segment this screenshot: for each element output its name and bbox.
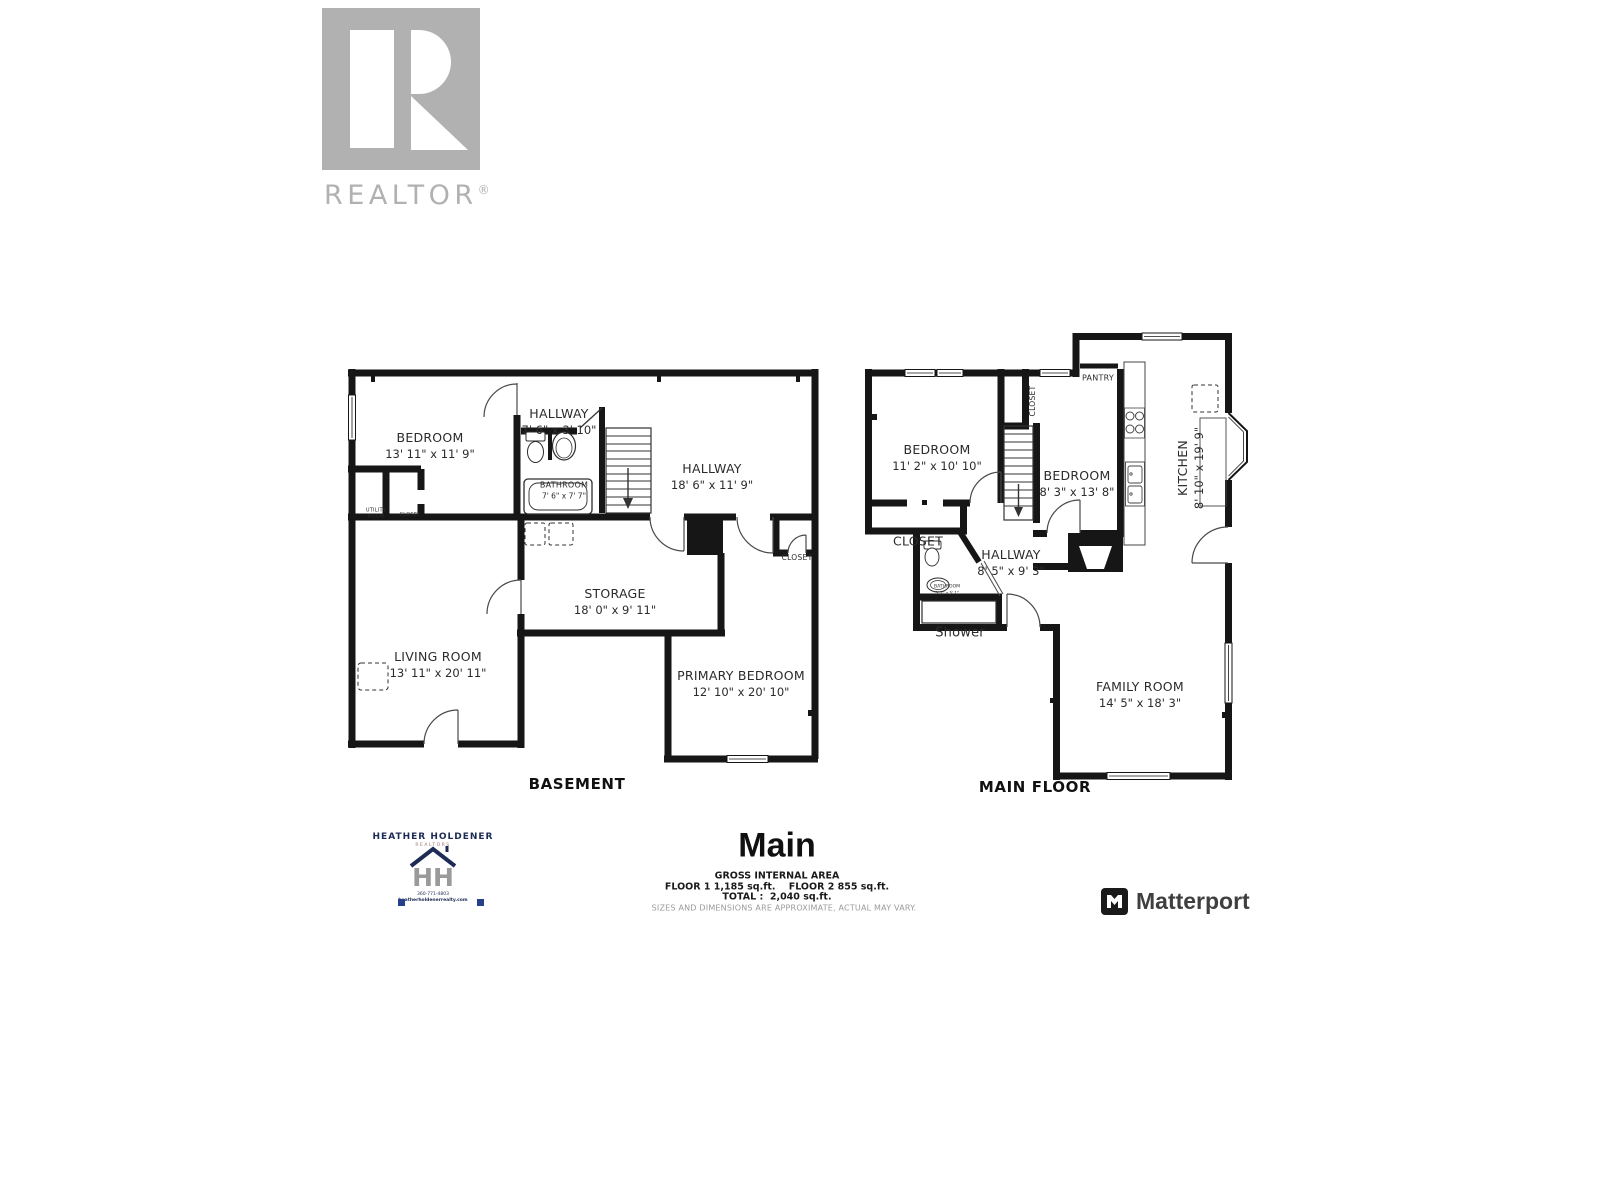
room-label-living-room: LIVING ROOM13' 11" x 20' 11" [390,607,487,681]
disclaimer-text: SIZES AND DIMENSIONS ARE APPROXIMATE, AC… [652,904,917,913]
matterport-icon [1101,888,1128,915]
room-label-bedroom-left: BEDROOM11' 2" x 10' 10" [892,400,982,474]
room-label-hallway: HALLWAY18' 6" x 11' 9" [671,419,753,493]
room-label-closet-small: CLOSET [400,470,421,518]
fireplace-icon [1068,533,1123,572]
room-label-shower: Shower [935,582,985,641]
gross-area-heading: GROSS INTERNAL AREA [715,871,840,882]
room-label-bedroom: BEDROOM13' 11" x 11' 9" [385,388,475,462]
floorplan-graphics: HH [0,0,1600,1200]
agent-name: HEATHER HOLDENER [373,832,494,842]
realtor-logo-text: REALTOR® [324,180,490,211]
room-label-family-room: FAMILY ROOM14' 5" x 18' 3" [1096,637,1184,711]
registered-mark: ® [478,183,490,197]
basement-chimney-icon [687,517,723,555]
matterport-logo-text: Matterport [1136,888,1250,915]
basement-floor-label: BASEMENT [529,775,626,793]
realtor-logo-icon [322,8,480,170]
page-title: Main [738,827,815,866]
room-label-closet-top: CLOSET [986,386,1038,417]
room-label-closet-right: CLOSET [782,511,813,563]
agent-website: heatherholdenerrealty.com [398,898,467,903]
agent-phone: 360-771-4803 [417,892,449,897]
svg-text:HH: HH [412,863,454,892]
room-label-bedroom-right: BEDROOM8' 3" x 13' 8" [1040,426,1115,500]
room-label-kitchen: KITCHEN8' 10" x 19' 9" [1133,427,1207,509]
agent-social-icon [398,899,405,906]
room-label-pantry: PANTRY [1082,332,1114,385]
bay-window [1229,413,1248,480]
gross-area-total: TOTAL : 2,040 sq.ft. [722,892,831,903]
main-floor-label: MAIN FLOOR [979,778,1091,796]
room-label-hallway-main: HALLWAY8' 5" x 9' 3" [977,505,1045,579]
agent-social-icon [477,899,484,906]
kitchen-dashed-fixture [1192,385,1218,412]
room-label-utility: UTILITYROOM [366,466,386,521]
room-label-storage: STORAGE18' 0" x 9' 11" [574,544,656,618]
room-label-primary-bedroom: PRIMARY BEDROOM12' 10" x 20' 10" [677,626,805,700]
hh-house-icon: HH [411,846,455,892]
agent-subtitle: REALTORS [415,843,450,848]
floorplan-sheet: HH REALTOR® BEDROOM13' 11" x 11' 9" HALL… [0,0,1600,1200]
room-label-hallway-upper: HALLWAY7' 6" x 3' 10" [522,364,597,438]
room-label-bathroom: BATHROOM7' 6" x 7' 7" [540,439,588,502]
